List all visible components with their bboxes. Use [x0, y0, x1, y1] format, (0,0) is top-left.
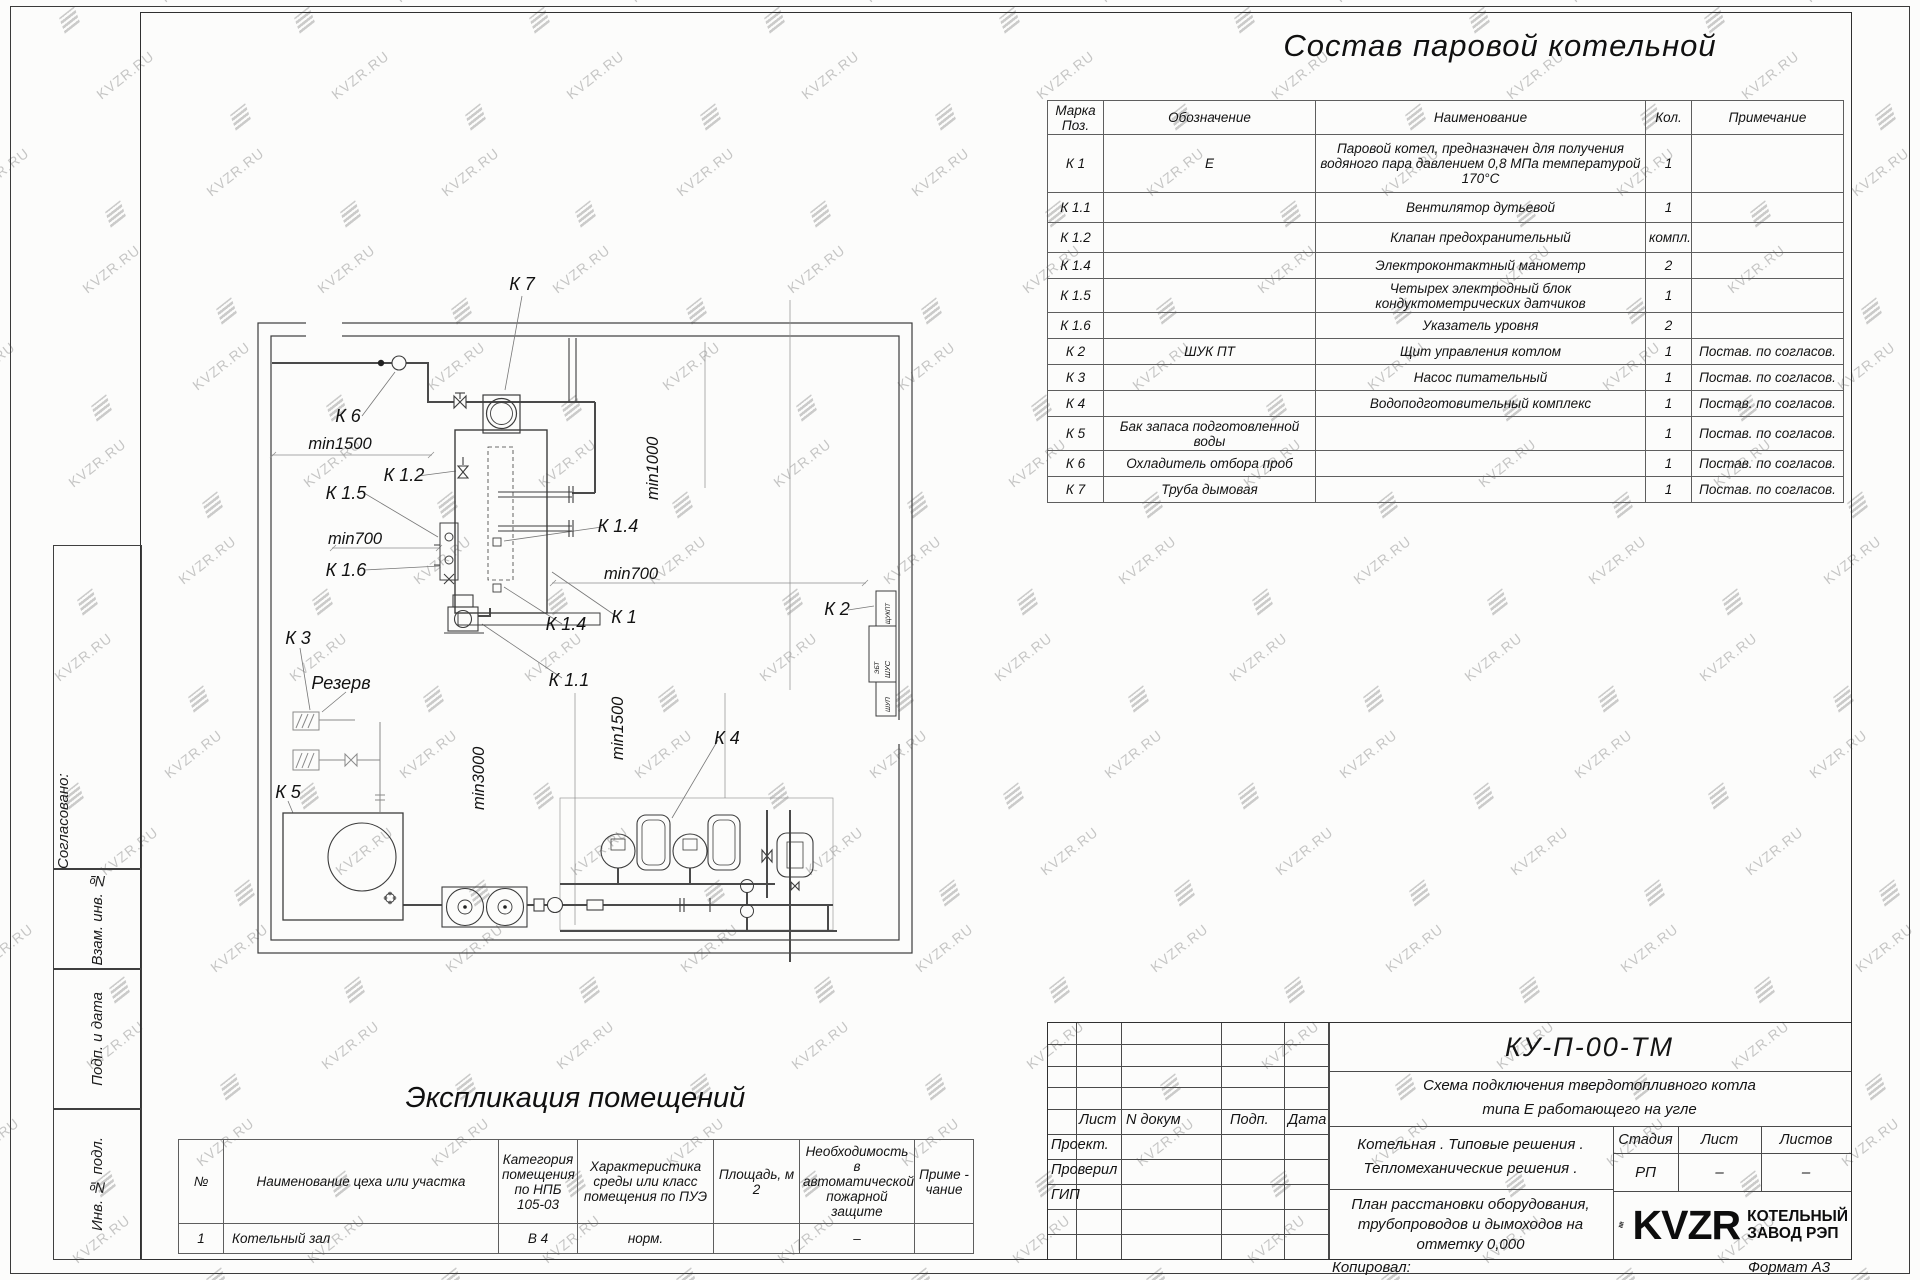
- label-min700-right: min700: [604, 565, 659, 583]
- cell-note: [1692, 193, 1844, 223]
- logo-company-line2: ЗАВОД РЭП: [1747, 1225, 1838, 1242]
- cell-qty: 1: [1646, 135, 1692, 193]
- cell-mark: К 6: [1048, 451, 1104, 477]
- tb-role-checked: Проверил: [1051, 1162, 1117, 1178]
- label-k14-bottom: К 1.4: [546, 614, 587, 634]
- cell-qty: компл.: [1646, 223, 1692, 253]
- col-header-area: Площадь, м 2: [714, 1140, 800, 1224]
- cell-num: 1: [179, 1224, 224, 1254]
- cell-name: Четырех электродный блок кондуктометриче…: [1316, 279, 1646, 313]
- cell-mark: К 4: [1048, 391, 1104, 417]
- watermark-text: KVZR.RU: [1332, 0, 1396, 5]
- cell-mark: К 1: [1048, 135, 1104, 193]
- label-cabinet-ebt: ЭБТ: [874, 661, 881, 674]
- document-code: КУ-П-00-ТМ: [1328, 1023, 1851, 1071]
- cell-designation: Труба дымовая: [1104, 477, 1316, 503]
- cell-designation: [1104, 365, 1316, 391]
- cell-room-name: Котельный зал: [224, 1224, 499, 1254]
- tb-header-data: Дата: [1288, 1112, 1326, 1128]
- cell-designation: Е: [1104, 135, 1316, 193]
- cell-qty: 1: [1646, 279, 1692, 313]
- listov-header: Листов: [1761, 1126, 1851, 1153]
- cell-name: [1316, 451, 1646, 477]
- cell-qty: 1: [1646, 365, 1692, 391]
- col-header-qty: Кол.: [1646, 101, 1692, 135]
- podp-data-block: Подп. и дата: [53, 968, 142, 1110]
- cell-note: Постав. по согласов.: [1692, 339, 1844, 365]
- cell-note: Постав. по согласов.: [1692, 451, 1844, 477]
- cell-name: Щит управления котлом: [1316, 339, 1646, 365]
- table-row: К 5 Бак запаса подготовленной воды 1 Пос…: [1048, 417, 1844, 451]
- tb-header-podp: Подп.: [1230, 1112, 1269, 1128]
- label-k2: К 2: [824, 599, 850, 619]
- vzam-inv-block: Взам. инв. №: [53, 868, 142, 970]
- cell-note: [1692, 135, 1844, 193]
- cell-env-class: норм.: [578, 1224, 714, 1254]
- podp-data-label: Подп. и дата: [89, 992, 106, 1086]
- table-row: К 1.2 Клапан предохранительный компл.: [1048, 223, 1844, 253]
- col-header-note: Примечание: [1692, 101, 1844, 135]
- cell-mark: К 1.2: [1048, 223, 1104, 253]
- cell-qty: 1: [1646, 451, 1692, 477]
- title-block: Лист N докум Подп. Дата Проект. Проверил…: [1047, 1022, 1852, 1260]
- cell-name: Электроконтактный манометр: [1316, 253, 1646, 279]
- table-row: К 1.6 Указатель уровня 2: [1048, 313, 1844, 339]
- table-header-row: Марка Поз. Обозначение Наименование Кол.…: [1048, 101, 1844, 135]
- object-line2: Тепломеханические решения .: [1328, 1157, 1613, 1179]
- doc-title-line1: Схема подключения твердотопливного котла: [1328, 1073, 1851, 1097]
- watermark-text: KVZR.RU: [0, 533, 4, 588]
- col-header-note: Приме - чание: [915, 1140, 974, 1224]
- label-k14-right: К 1.4: [598, 516, 639, 536]
- label-min1500-top: min1500: [308, 435, 372, 453]
- inv-podl-block: Инв. № подл.: [53, 1108, 142, 1260]
- cell-name: Водоподготовительный комплекс: [1316, 391, 1646, 417]
- cell-name: [1316, 477, 1646, 503]
- explication-title: Экспликация помещений: [178, 1082, 973, 1115]
- cell-note: Постав. по согласов.: [1692, 477, 1844, 503]
- tb-header-list: Лист: [1079, 1112, 1116, 1128]
- label-rezerv: Резерв: [311, 673, 370, 693]
- cell-designation: [1104, 391, 1316, 417]
- approved-label: Согласовано:: [55, 546, 72, 869]
- cell-name: Клапан предохранительный: [1316, 223, 1646, 253]
- label-k1: К 1: [611, 607, 637, 627]
- col-header-num: №: [179, 1140, 224, 1224]
- format-label: Формат А3: [1748, 1259, 1830, 1276]
- doc-title-line2: типа Е работающего на угле: [1328, 1097, 1851, 1121]
- col-header-mark: Марка Поз.: [1048, 101, 1104, 135]
- cell-designation: [1104, 223, 1316, 253]
- cell-qty: 1: [1646, 391, 1692, 417]
- label-k3: К 3: [285, 628, 311, 648]
- table-row: К 1.1 Вентилятор дутьевой 1: [1048, 193, 1844, 223]
- watermark-text: KVZR.RU: [157, 0, 221, 5]
- leader-lines: [288, 296, 874, 818]
- cell-qty: 1: [1646, 477, 1692, 503]
- table-row: К 1.4 Электроконтактный манометр 2: [1048, 253, 1844, 279]
- watermark-text: KVZR.RU: [1567, 0, 1631, 5]
- label-k7: К 7: [509, 274, 536, 294]
- cell-mark: К 1.4: [1048, 253, 1104, 279]
- feed-pumps-k3: [442, 887, 527, 927]
- components-table: Марка Поз. Обозначение Наименование Кол.…: [1047, 100, 1843, 503]
- cell-name: Насос питательный: [1316, 365, 1646, 391]
- cell-note: [1692, 223, 1844, 253]
- cell-mark: К 1.5: [1048, 279, 1104, 313]
- cell-designation: [1104, 193, 1316, 223]
- vzam-inv-label: Взам. инв. №: [89, 872, 106, 966]
- inv-podl-label: Инв. № подл.: [89, 1137, 106, 1231]
- list-value: –: [1678, 1153, 1761, 1191]
- label-k15: К 1.5: [326, 483, 368, 503]
- plan-labels: К 7 К 6 min1500 К 1.2 К 1.5 min700 К 1.6…: [275, 274, 892, 810]
- table-row: К 1.5 Четырех электродный блок кондуктом…: [1048, 279, 1844, 313]
- tb-role-project: Проект.: [1051, 1137, 1109, 1153]
- label-min3000: min3000: [470, 746, 488, 810]
- col-header-category: Категория помещения по НПБ 105-03: [499, 1140, 578, 1224]
- cell-note: [1692, 313, 1844, 339]
- watermark-text: KVZR.RU: [392, 0, 456, 5]
- approved-block: Согласовано:: [53, 545, 142, 870]
- cell-qty: 1: [1646, 339, 1692, 365]
- cell-mark: К 1.6: [1048, 313, 1104, 339]
- label-min700-left: min700: [328, 530, 383, 548]
- label-cabinet-schukpt: ЩУКПТ: [886, 602, 892, 624]
- cell-designation: [1104, 253, 1316, 279]
- explication-data-row: 1 Котельный зал В 4 норм. –: [179, 1224, 974, 1254]
- cell-name: Вентилятор дутьевой: [1316, 193, 1646, 223]
- cell-note: Постав. по согласов.: [1692, 391, 1844, 417]
- logo-company-line1: КОТЕЛЬНЫЙ: [1747, 1208, 1848, 1225]
- col-header-fire-protection: Необходимость в автоматической пожарной …: [800, 1140, 915, 1224]
- cell-note: Постав. по согласов.: [1692, 365, 1844, 391]
- cell-qty: 2: [1646, 313, 1692, 339]
- water-treatment-k4: [601, 815, 813, 918]
- stage-header: Стадия: [1613, 1126, 1678, 1153]
- col-header-name: Наименование: [1316, 101, 1646, 135]
- label-k4: К 4: [714, 728, 740, 748]
- cell-designation: ШУК ПТ: [1104, 339, 1316, 365]
- label-k16: К 1.6: [326, 560, 368, 580]
- sheet-title: Состав паровой котельной: [1150, 28, 1850, 64]
- cell-qty: 2: [1646, 253, 1692, 279]
- kvzr-logo-icon: [1618, 1206, 1626, 1244]
- label-k5: К 5: [275, 782, 302, 802]
- table-row: К 1 Е Паровой котел, предназначен для по…: [1048, 135, 1844, 193]
- explication-header-row: № Наименование цеха или участка Категори…: [179, 1140, 974, 1224]
- cell-designation: [1104, 279, 1316, 313]
- cell-note: [1692, 253, 1844, 279]
- drawing-sheet: { "watermark": { "text": "KVZR.RU", "col…: [0, 0, 1920, 1280]
- cell-note: Постав. по согласов.: [1692, 417, 1844, 451]
- reserve-pump: [293, 712, 385, 812]
- label-min1000: min1000: [644, 436, 662, 500]
- cell-mark: К 1.1: [1048, 193, 1104, 223]
- watermark-text: KVZR.RU: [627, 0, 691, 5]
- cell-fire-protection: –: [800, 1224, 915, 1254]
- company-logo: KVZR КОТЕЛЬНЫЙ ЗАВОД РЭП: [1618, 1193, 1848, 1257]
- col-header-room-name: Наименование цеха или участка: [224, 1140, 499, 1224]
- cell-qty: 1: [1646, 417, 1692, 451]
- table-row: К 2 ШУК ПТ Щит управления котлом 1 Поста…: [1048, 339, 1844, 365]
- cell-name: Паровой котел, предназначен для получени…: [1316, 135, 1646, 193]
- label-k12: К 1.2: [384, 465, 425, 485]
- label-k11: К 1.1: [549, 670, 590, 690]
- sample-cooler-k6: [378, 356, 406, 370]
- col-header-designation: Обозначение: [1104, 101, 1316, 135]
- cell-name: Указатель уровня: [1316, 313, 1646, 339]
- cell-note: [915, 1224, 974, 1254]
- cell-designation: [1104, 313, 1316, 339]
- table-row: К 3 Насос питательный 1 Постав. по согла…: [1048, 365, 1844, 391]
- water-tank-k5: [283, 813, 403, 920]
- explication-table: № Наименование цеха или участка Категори…: [178, 1139, 973, 1254]
- cell-category: В 4: [499, 1224, 578, 1254]
- fan-k11: [444, 595, 484, 633]
- cell-mark: К 2: [1048, 339, 1104, 365]
- cell-mark: К 3: [1048, 365, 1104, 391]
- table-row: К 7 Труба дымовая 1 Постав. по согласов.: [1048, 477, 1844, 503]
- watermark-text: KVZR.RU: [1802, 0, 1866, 5]
- cell-designation: Бак запаса подготовленной воды: [1104, 417, 1316, 451]
- cell-mark: К 7: [1048, 477, 1104, 503]
- table-row: К 4 Водоподготовительный комплекс 1 Пост…: [1048, 391, 1844, 417]
- label-cabinet-shus: ШУС: [883, 660, 892, 678]
- table-row: К 6 Охладитель отбора проб 1 Постав. по …: [1048, 451, 1844, 477]
- copied-label: Копировал:: [1332, 1259, 1411, 1276]
- stage-value: РП: [1613, 1153, 1678, 1191]
- listov-value: –: [1761, 1153, 1851, 1191]
- floor-plan: К 7 К 6 min1500 К 1.2 К 1.5 min700 К 1.6…: [150, 250, 970, 980]
- cell-designation: Охладитель отбора проб: [1104, 451, 1316, 477]
- label-min1500-mid: min1500: [609, 696, 627, 760]
- col-header-env-class: Характеристика среды или класс помещения…: [578, 1140, 714, 1224]
- object-line1: Котельная . Типовые решения .: [1328, 1133, 1613, 1155]
- cell-note: [1692, 279, 1844, 313]
- cell-name: [1316, 417, 1646, 451]
- cell-qty: 1: [1646, 193, 1692, 223]
- watermark-text: KVZR.RU: [862, 0, 926, 5]
- list-header: Лист: [1678, 1126, 1761, 1153]
- tb-role-gip: ГИП: [1051, 1187, 1080, 1203]
- cell-mark: К 5: [1048, 417, 1104, 451]
- watermark-text: KVZR.RU: [1097, 0, 1161, 5]
- cell-area: [714, 1224, 800, 1254]
- sheet-name: План расстановки оборудования, трубопров…: [1331, 1193, 1610, 1257]
- label-cabinet-shup: ШУП: [885, 697, 892, 712]
- logo-text: KVZR: [1633, 1202, 1741, 1249]
- tb-header-ndoc: N докум: [1126, 1112, 1181, 1128]
- label-k6: К 6: [335, 406, 362, 426]
